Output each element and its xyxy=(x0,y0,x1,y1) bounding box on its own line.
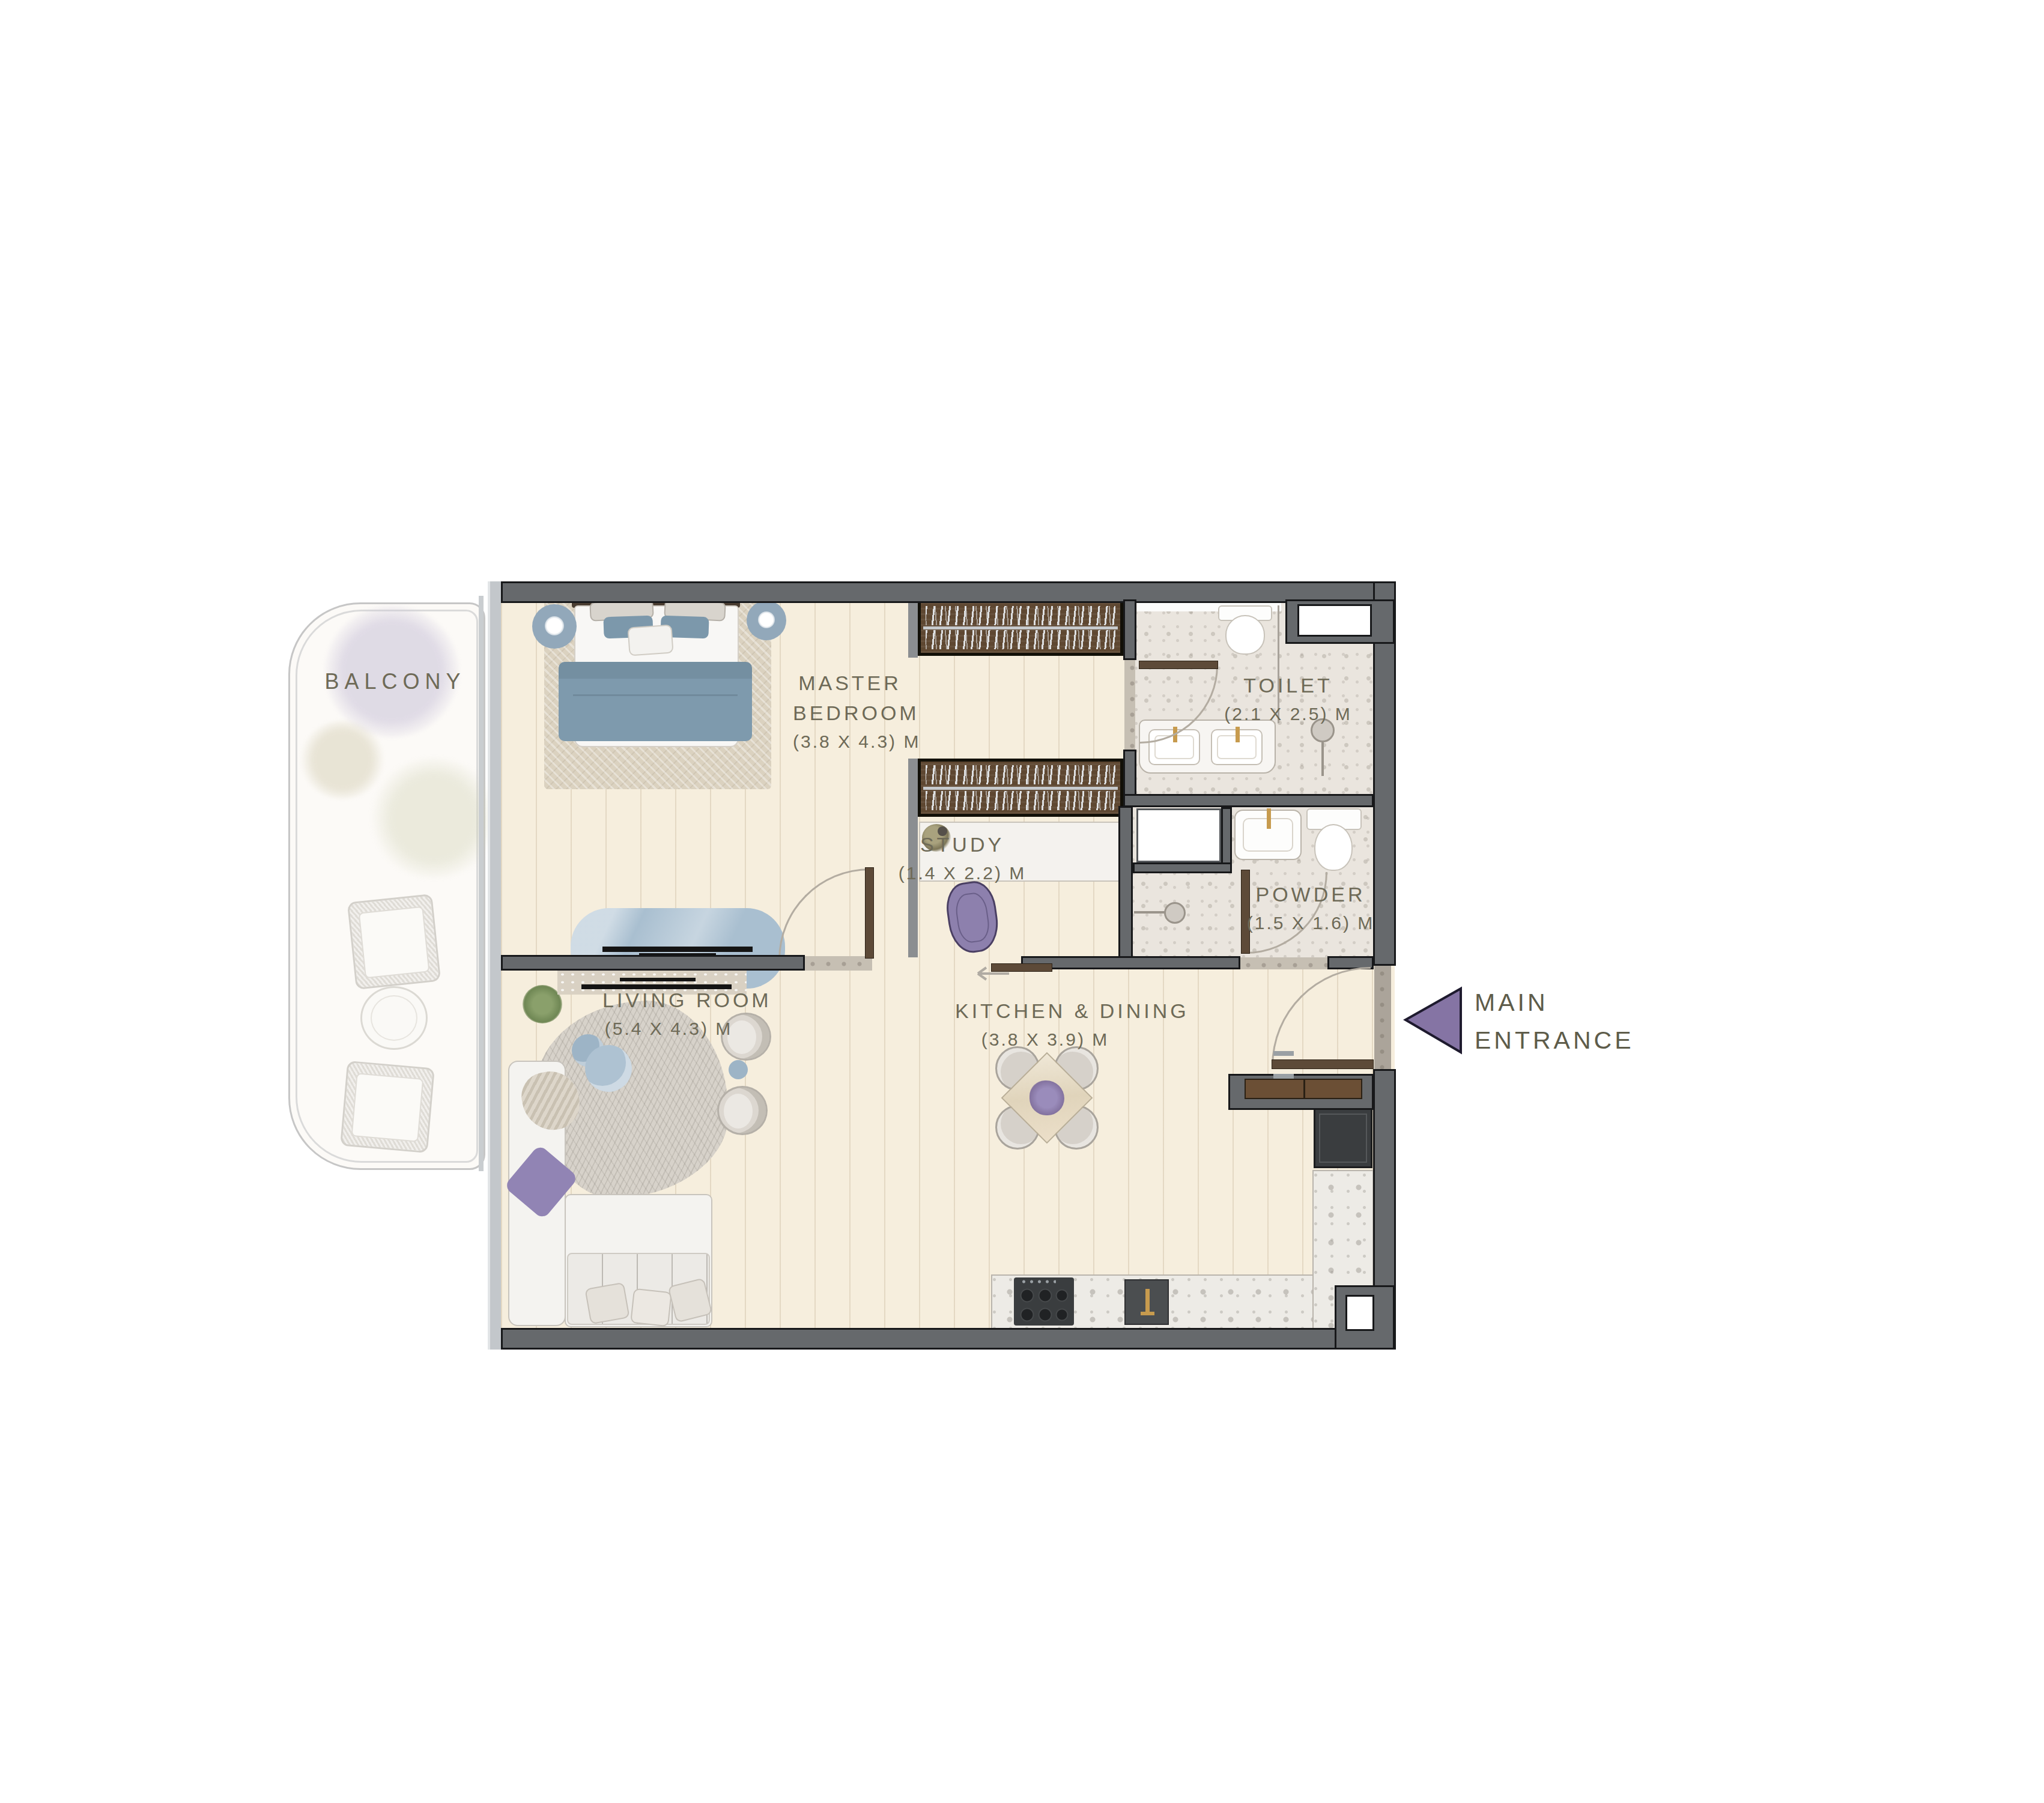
balcony-round-table xyxy=(360,986,428,1050)
shower-pipe xyxy=(1134,911,1165,914)
wc-icon xyxy=(1218,605,1272,656)
floor-plan-page: { "page": {"type": "apartment floor plan… xyxy=(0,0,2044,1803)
living-room-label: LIVING ROOM (5.4 X 4.3) M xyxy=(602,985,735,1043)
nightstand-right xyxy=(747,601,786,640)
entrance-threshold xyxy=(1374,966,1391,1069)
main-entrance-label: MAIN ENTRANCE xyxy=(1475,984,1634,1059)
tv-icon xyxy=(620,978,696,981)
wall-bottom xyxy=(501,1328,1396,1350)
lamp-icon xyxy=(758,611,775,628)
side-table-blue xyxy=(729,1060,748,1079)
toilet-door-threshold xyxy=(1124,660,1135,750)
wall-bedroom-toilet-lower xyxy=(1123,750,1136,796)
toilet-label: TOILET (2.1 X 2.5) M xyxy=(1221,670,1356,728)
wall-bedroom-living xyxy=(501,955,805,971)
closet-rail xyxy=(923,787,1118,790)
hanger-icons xyxy=(926,606,1115,625)
balcony-shrub-beige xyxy=(300,721,384,799)
wc-icon xyxy=(1306,808,1362,874)
wardrobe-end-wall-top xyxy=(908,598,918,658)
wall-bedroom-toilet-upper xyxy=(1123,599,1136,660)
entry-console xyxy=(1245,1079,1362,1099)
slide-direction-arrow-icon xyxy=(975,963,1011,984)
cooktop xyxy=(1014,1277,1074,1326)
balcony-lounge-chair-1 xyxy=(347,894,441,990)
wall-kitchen-top xyxy=(1021,956,1240,969)
door-hinge-mark xyxy=(1273,1074,1294,1079)
wall-hall-vertical xyxy=(1118,806,1133,966)
laundry-closet xyxy=(1136,808,1221,862)
wardrobe-end-wall-bottom xyxy=(908,759,918,818)
shower-pipe xyxy=(1321,742,1324,776)
bed-duvet xyxy=(559,662,752,741)
hanger-icons xyxy=(926,791,1115,810)
duct-shaft-top-right xyxy=(1297,604,1372,637)
coffee-table-large xyxy=(585,1045,632,1092)
hanger-icons xyxy=(926,765,1115,784)
sofa-throw-pillow-1 xyxy=(584,1282,629,1325)
door-hinge-mark xyxy=(1273,1051,1294,1056)
kitchen-sink xyxy=(1124,1279,1169,1325)
hanger-icons xyxy=(926,630,1115,649)
bed-pillow-white-center xyxy=(627,624,673,656)
armchair-bottom xyxy=(717,1086,768,1135)
living-plant-icon xyxy=(523,985,562,1023)
main-entrance-door xyxy=(1272,1059,1374,1069)
lamp-icon xyxy=(545,616,564,635)
powder-sink xyxy=(1234,810,1302,860)
powder-door-threshold xyxy=(1240,957,1327,969)
duct-shaft-bottom-right xyxy=(1345,1295,1374,1331)
sofa-throw-pillow-2 xyxy=(630,1288,672,1327)
nightstand-left xyxy=(532,604,577,649)
wall-top xyxy=(501,581,1396,603)
wall-toilet-bottom xyxy=(1123,794,1374,807)
faucet-icon xyxy=(1145,1289,1150,1314)
toilet-door xyxy=(1139,661,1218,669)
study-label: STUDY (1.4 X 2.2) M xyxy=(884,829,1040,887)
balcony-lounge-chair-2 xyxy=(340,1061,435,1153)
balcony-label: BALCONY xyxy=(296,667,494,697)
table-flowers-icon xyxy=(1030,1080,1064,1115)
tv-icon xyxy=(602,947,753,952)
kitchen-dining-label: KITCHEN & DINING (3.8 X 3.9) M xyxy=(955,996,1135,1053)
wall-closet-bottom xyxy=(1133,862,1232,873)
main-entrance-arrow-icon xyxy=(1403,985,1466,1056)
wardrobe-top xyxy=(918,599,1123,656)
powder-label: POWDER (1.5 X 1.6) M xyxy=(1242,879,1380,937)
shower-head-icon xyxy=(1164,902,1186,924)
faucet-icon xyxy=(1236,727,1240,742)
vanity-sink-right xyxy=(1211,729,1263,765)
closet-rail xyxy=(923,626,1118,629)
faucet-icon xyxy=(1267,808,1271,829)
bedroom-door xyxy=(865,867,874,959)
master-bedroom-label: MASTER BEDROOM (3.8 X 4.3) M xyxy=(793,668,907,756)
wardrobe-bottom xyxy=(918,759,1123,817)
fridge xyxy=(1314,1108,1372,1168)
